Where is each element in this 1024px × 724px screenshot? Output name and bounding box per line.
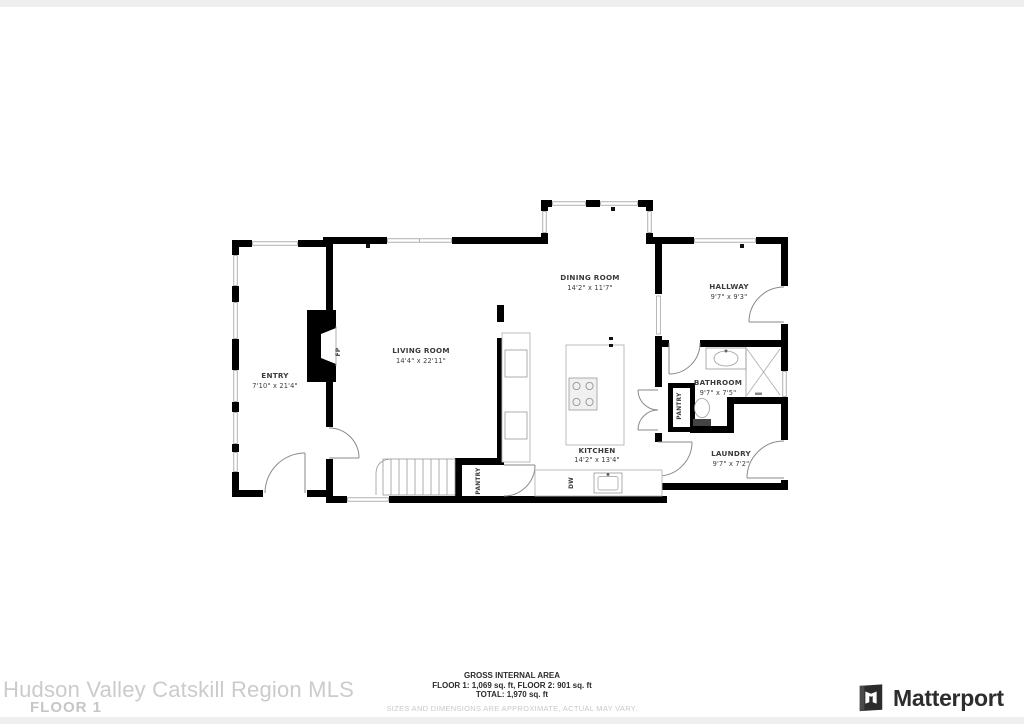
window <box>232 370 239 402</box>
dining-room-dims: 14'2" x 11'7" <box>567 284 613 292</box>
shower-drain-icon <box>755 393 762 396</box>
pantry-kitchen-label: PANTRY <box>476 467 482 495</box>
laundry-dims: 9'7" x 7'2" <box>713 460 750 468</box>
entry-living-door <box>325 427 359 459</box>
cased-opening <box>654 294 663 336</box>
matterport-wordmark: Matterport <box>893 685 1004 712</box>
appliance <box>505 350 527 377</box>
entry-room-dims: 7'10" x 21'4" <box>252 382 298 390</box>
kitchen-sink <box>594 473 622 493</box>
window <box>232 302 239 339</box>
toilet <box>693 399 711 427</box>
dishwasher-label: DW <box>569 477 575 489</box>
window <box>694 237 756 244</box>
window <box>347 496 389 503</box>
bathroom-label: BATHROOM <box>694 378 742 387</box>
vanity-sink <box>706 348 746 369</box>
laundry-right-door <box>747 440 789 480</box>
floor-plan-drawing: ENTRY 7'10" x 21'4" LIVING ROOM 14'4" x … <box>0 0 1024 724</box>
fireplace-label: FP <box>336 347 342 356</box>
kitchen-door <box>504 465 535 496</box>
dining-room-label: DINING ROOM <box>560 273 619 282</box>
entry-exterior-door <box>263 453 307 498</box>
bathroom-door <box>669 339 700 374</box>
matterport-logo-icon <box>856 683 886 713</box>
hallway-label: HALLWAY <box>709 282 749 291</box>
pantry-french-doors <box>638 387 663 433</box>
living-room-dims: 14'4" x 22'11" <box>396 357 446 365</box>
window <box>600 200 638 207</box>
stove <box>569 378 597 410</box>
window <box>232 255 239 286</box>
hallway-dims: 9'7" x 9'3" <box>711 293 748 301</box>
living-room-label: LIVING ROOM <box>392 346 450 355</box>
window <box>387 237 452 244</box>
gross-internal-area-title: GROSS INTERNAL AREA <box>0 671 1024 681</box>
window <box>232 452 239 472</box>
floorplan-page: ENTRY 7'10" x 21'4" LIVING ROOM 14'4" x … <box>0 0 1024 724</box>
appliance <box>505 412 527 439</box>
pantry-hall-label: PANTRY <box>677 392 683 420</box>
window <box>552 200 586 207</box>
matterport-brand: Matterport <box>856 683 1004 713</box>
laundry-label: LAUNDRY <box>711 449 751 458</box>
entry-room-label: ENTRY <box>261 371 289 380</box>
staircase <box>376 459 455 495</box>
bathroom-dims: 9'7" x 7'5" <box>700 389 737 397</box>
window <box>541 211 548 233</box>
kitchen-dims: 14'2" x 13'4" <box>574 456 620 464</box>
window <box>252 240 298 247</box>
window <box>781 371 788 397</box>
hallway-exterior-door <box>749 286 789 324</box>
fireplace <box>307 310 336 382</box>
kitchen-fixtures <box>502 333 662 496</box>
shower <box>746 347 780 397</box>
kitchen-label: KITCHEN <box>578 446 615 455</box>
window <box>232 412 239 444</box>
window <box>646 211 653 233</box>
